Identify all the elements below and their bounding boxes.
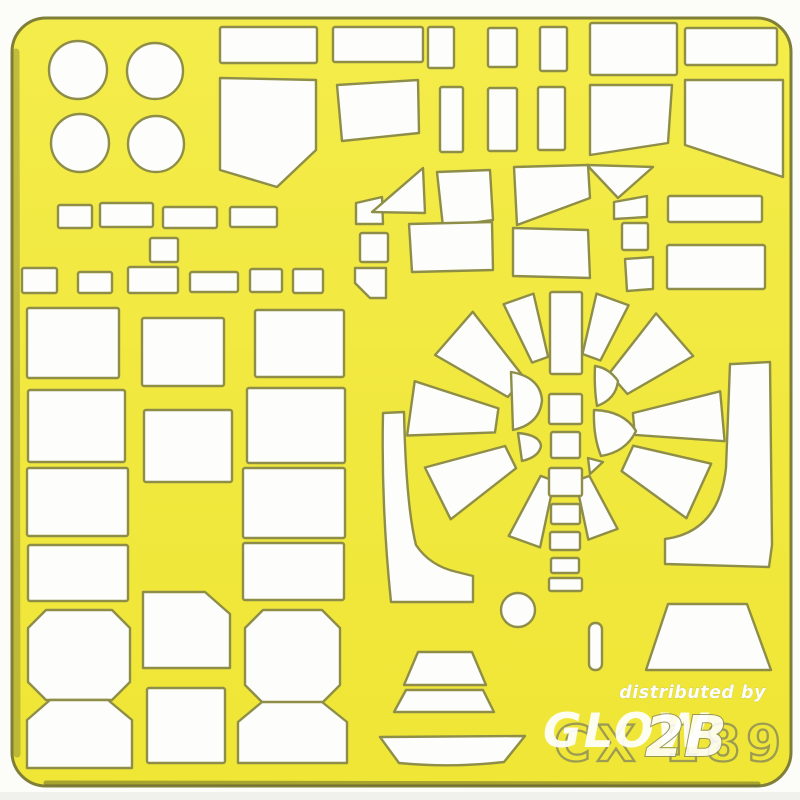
cutout-spine-rect	[551, 504, 580, 524]
cutout-slot-rect	[440, 87, 463, 152]
cutout-large-rect	[27, 468, 128, 536]
cutout-spine-rect	[551, 558, 579, 573]
cutout-octagon-panel	[245, 610, 340, 703]
cutout-porthole-circle-2	[127, 43, 183, 99]
cutout-glazing-quad	[513, 228, 590, 278]
cutout-large-rect	[247, 388, 345, 463]
cutout-large-rect	[28, 545, 128, 601]
cutout-panel-rect	[668, 196, 762, 222]
cutout-spine-rect	[549, 468, 582, 496]
cutout-tab-rect	[190, 272, 238, 292]
cutout-large-rect	[243, 543, 344, 600]
cutout-glazing-quad	[437, 170, 493, 227]
cutout-tab-rect	[22, 268, 57, 293]
cutout-hull-trapezoid	[394, 690, 494, 712]
cutout-tab-rect	[78, 272, 112, 293]
cutout-slot-rect	[428, 27, 454, 68]
cutout-large-rect	[27, 308, 119, 378]
cutout-corner-cut-panel	[143, 592, 230, 668]
cutout-small-quad	[625, 257, 653, 291]
cutout-panel-rect	[590, 23, 677, 75]
cutout-wheel-circle	[501, 593, 535, 627]
cutout-large-rect	[142, 318, 224, 386]
cutout-tab-rect	[622, 223, 648, 250]
cutout-slot-rect	[540, 27, 567, 71]
cutout-spine-rect	[550, 532, 580, 550]
cutout-tub-panel	[238, 702, 347, 763]
cutout-tab-rect	[163, 207, 217, 228]
cutout-tab-rect	[250, 269, 282, 292]
cutout-window-quad	[590, 85, 672, 155]
cutout-slot-rect	[488, 28, 517, 67]
cutout-tab-rect	[128, 267, 178, 293]
cutout-hull-trapezoid	[404, 652, 486, 685]
cutout-panel-rect	[685, 28, 777, 65]
cutout-porthole-circle-4	[128, 116, 184, 172]
cutout-large-rect	[28, 390, 125, 462]
cutout-spine-rect	[549, 394, 582, 424]
cutout-spine-rect	[550, 292, 582, 374]
cutout-spine-rect	[551, 432, 580, 458]
cutout-slot-rect	[538, 87, 565, 150]
cutout-tab-rect	[150, 238, 178, 262]
cutout-spine-rect	[549, 578, 582, 591]
cutout-tab-rect	[230, 207, 277, 227]
mask-sheet-photo: CX 189GLOW2Bdistributed by	[0, 0, 800, 800]
cutout-tab-rect	[293, 269, 323, 293]
cutout-tab-rect	[58, 205, 92, 228]
product-photo: CX 189GLOW2Bdistributed by Yellow die-cu…	[0, 0, 800, 800]
cutout-window-quad	[337, 80, 419, 141]
watermark-glow-logo-2b: 2B	[645, 705, 727, 770]
cutout-large-rect	[147, 688, 225, 763]
cutout-octagon-panel	[28, 610, 130, 700]
cutout-pill-slot	[589, 623, 602, 670]
cutout-large-rect	[255, 310, 344, 377]
cutout-large-rect	[243, 468, 345, 538]
cutout-porthole-circle-3	[51, 114, 109, 172]
cutout-boat-hull	[380, 736, 525, 765]
cutout-panel-rect	[333, 27, 423, 62]
cutout-slot-rect	[488, 88, 517, 151]
cutout-tub-panel	[27, 700, 132, 768]
watermark-distributed-by: distributed by	[619, 683, 767, 703]
cutout-panel-rect	[220, 27, 317, 63]
cutout-porthole-circle-1	[49, 41, 107, 99]
cutout-panel-rect	[667, 245, 765, 289]
cutout-tab-rect	[360, 233, 388, 262]
cutout-tab-rect	[100, 203, 153, 227]
cutout-large-rect	[144, 410, 232, 482]
cutout-glazing-quad	[409, 222, 493, 272]
